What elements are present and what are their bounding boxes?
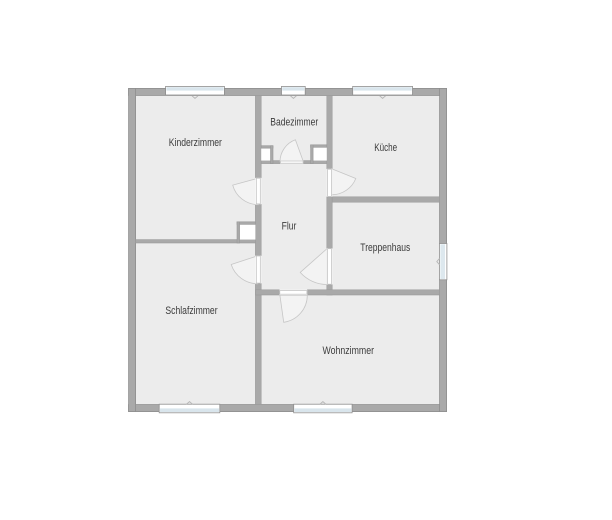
svg-text:Badezimmer: Badezimmer [270,116,318,128]
svg-text:Küche: Küche [374,142,397,154]
svg-text:Wohnzimmer: Wohnzimmer [323,345,375,357]
svg-text:Treppenhaus: Treppenhaus [360,242,410,254]
svg-text:Flur: Flur [282,220,297,232]
svg-text:Kinderzimmer: Kinderzimmer [169,137,222,149]
svg-text:Schlafzimmer: Schlafzimmer [165,305,217,317]
